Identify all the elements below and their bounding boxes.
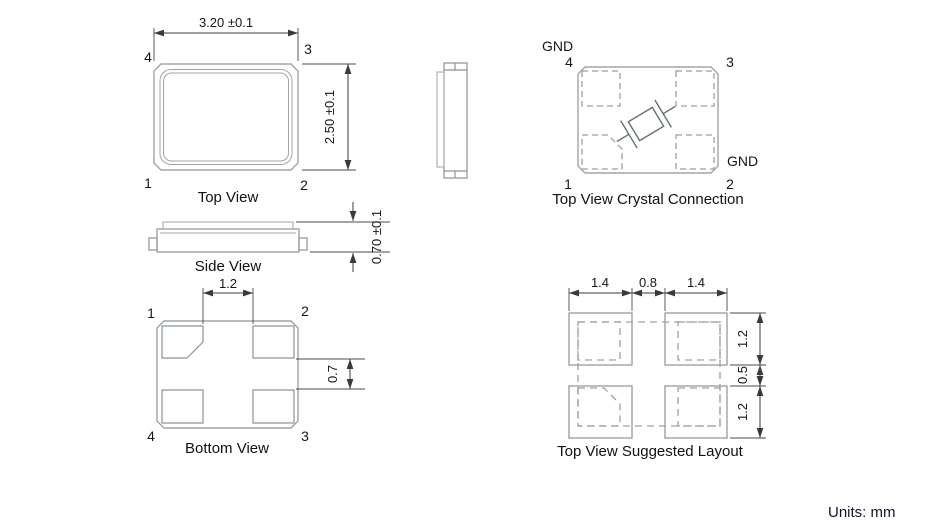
crystal-view-body-outline: [578, 67, 718, 173]
crystal-connection-view: GND GND 4 3 1 2 Top View Crystal Connect…: [542, 38, 758, 208]
side-view-height-value: 0.70 ±0.1: [369, 210, 384, 264]
top-view-width-dimension: 3.20 ±0.1: [154, 15, 298, 61]
crystal-view-pin3-label: 3: [726, 54, 734, 70]
bottom-view-body-outline: [157, 321, 298, 428]
top-view-caption: Top View: [198, 189, 259, 206]
crystal-view-pad1: [582, 135, 622, 169]
layout-caption: Top View Suggested Layout: [557, 443, 744, 460]
layout-top-dimensions: 1.4 0.8 1.4: [569, 275, 727, 311]
layout-dim-bottom-pad-height: 1.2: [735, 403, 750, 421]
top-view-lid-inner: [164, 73, 289, 161]
bottom-view: 1 2 4 3 1.2 0.7 Bottom View: [147, 276, 365, 457]
units-label: Units: mm: [828, 504, 896, 521]
layout-pad-bottom-right: [665, 386, 727, 438]
end-view-lid: [437, 72, 444, 167]
top-view-body-outline: [154, 64, 298, 170]
layout-pad-top-right: [665, 313, 727, 365]
bottom-view-caption: Bottom View: [185, 440, 269, 457]
top-view-height-dimension: 2.50 ±0.1: [302, 64, 356, 170]
bottom-view-pad2: [253, 326, 294, 358]
top-view-height-value: 2.50 ±0.1: [322, 90, 337, 144]
layout-package-outline: [578, 322, 720, 426]
end-view-body: [444, 63, 467, 178]
layout-dim-top-pad-height: 1.2: [735, 330, 750, 348]
layout-dim-right-pad-width: 1.4: [687, 275, 705, 290]
suggested-layout-view: 1.4 0.8 1.4 1.2 0.5 1.2 Top View Suggest…: [557, 275, 766, 460]
bottom-view-pad1: [162, 326, 203, 358]
bottom-view-pin3-label: 3: [301, 428, 309, 444]
crystal-view-pad3: [676, 71, 714, 106]
crystal-view-pin2-label: 2: [726, 176, 734, 192]
side-view-height-dimension: 0.70 ±0.1: [296, 202, 390, 272]
crystal-symbol: [609, 93, 684, 155]
side-view-caption: Side View: [195, 258, 262, 275]
side-view: 0.70 ±0.1 Side View: [149, 202, 390, 275]
layout-dim-pad-gap: 0.8: [639, 275, 657, 290]
crystal-view-gnd-right-label: GND: [727, 153, 758, 169]
bottom-view-pad3: [253, 390, 294, 423]
side-view-left-pad: [149, 238, 157, 250]
side-view-lid: [163, 222, 293, 229]
layout-dim-left-pad-width: 1.4: [591, 275, 609, 290]
bottom-view-pin2-label: 2: [301, 303, 309, 319]
bottom-view-gap-dimension: 1.2: [203, 276, 253, 324]
side-view-body: [157, 229, 299, 252]
bottom-view-pin4-label: 4: [147, 428, 155, 444]
bottom-view-pin1-label: 1: [147, 305, 155, 321]
crystal-view-pad4: [582, 71, 620, 106]
bottom-view-pad4: [162, 390, 203, 423]
top-view-pin1-label: 1: [144, 175, 152, 191]
layout-package-pad2: [678, 388, 720, 426]
layout-right-dimensions: 1.2 0.5 1.2: [730, 313, 766, 438]
package-drawing: 4 3 1 2 3.20 ±0.1 2.50 ±0.1 Top View: [0, 0, 933, 532]
crystal-view-pad2: [676, 135, 714, 169]
top-view-pin3-label: 3: [304, 41, 312, 57]
bottom-view-pad-height-value: 0.7: [325, 365, 340, 383]
top-view-pin4-label: 4: [144, 49, 152, 65]
bottom-view-gap-value: 1.2: [219, 276, 237, 291]
top-view-pin2-label: 2: [300, 177, 308, 193]
crystal-view-pin1-label: 1: [564, 176, 572, 192]
crystal-view-pin4-label: 4: [565, 54, 573, 70]
layout-package-pad3: [678, 322, 720, 360]
layout-package-pad1: [578, 388, 620, 426]
layout-package-pad4: [578, 322, 620, 360]
top-view-lid-outer: [160, 70, 292, 165]
crystal-view-gnd-top-label: GND: [542, 38, 573, 54]
top-view: 4 3 1 2 3.20 ±0.1 2.50 ±0.1 Top View: [144, 15, 356, 206]
crystal-view-caption: Top View Crystal Connection: [552, 191, 743, 208]
side-view-right-pad: [299, 238, 307, 250]
layout-dim-vertical-gap: 0.5: [735, 366, 750, 384]
end-view: [437, 63, 467, 178]
top-view-width-value: 3.20 ±0.1: [199, 15, 253, 30]
bottom-view-pad-height-dimension: 0.7: [296, 359, 365, 389]
